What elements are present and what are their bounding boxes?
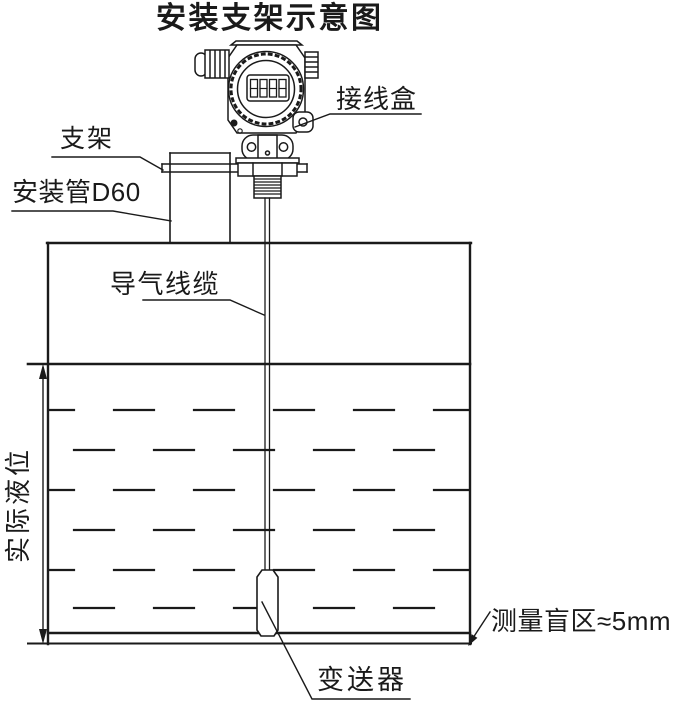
diagram-title: 安装支架示意图 (156, 2, 384, 35)
cable-gland-icon (195, 50, 229, 78)
side-plug-icon (305, 52, 318, 78)
label-actual-level: 实际液位 (4, 430, 30, 580)
level-dimension-arrow (39, 364, 47, 644)
label-mounting-pipe: 安装管D60 (12, 178, 141, 207)
label-blind-zone: 测量盲区≈5mm (491, 607, 671, 636)
leader-junction-box (295, 114, 421, 127)
hex-nut (238, 163, 297, 176)
neck-flange (242, 135, 293, 160)
tank-outline (28, 243, 471, 644)
bolt-icon (231, 120, 238, 127)
air-guide-cable (265, 198, 270, 570)
mounting-pipe (170, 153, 230, 242)
label-air-cable: 导气线缆 (110, 270, 220, 299)
transmitter-head (195, 41, 318, 198)
label-transmitter: 变送器 (317, 666, 407, 696)
leader-air-cable (143, 300, 264, 315)
lcd-display-icon (247, 75, 289, 101)
installation-diagram: 安装支架示意图 接线盒 支架 安装管D60 导气线缆 实际液位 测量盲区≈5mm… (0, 0, 700, 708)
leader-bracket (52, 157, 163, 170)
threaded-stem (254, 176, 281, 198)
label-junction-box: 接线盒 (336, 85, 417, 114)
label-bracket: 支架 (60, 126, 114, 154)
leader-mounting-pipe (12, 211, 171, 221)
